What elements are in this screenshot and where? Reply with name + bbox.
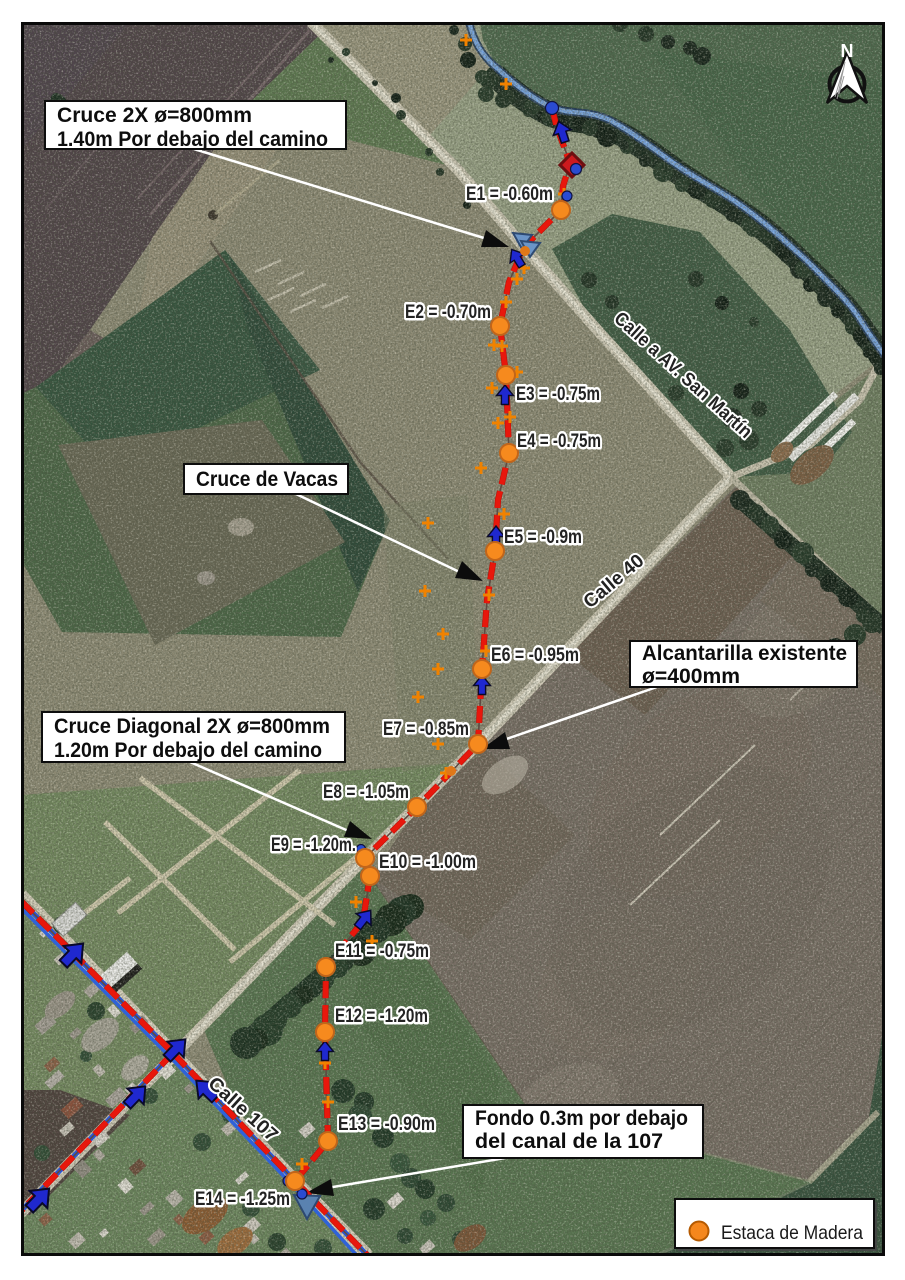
- svg-text:1.20m Por debajo del camino: 1.20m Por debajo del camino: [54, 739, 322, 762]
- svg-text:E13 = -0.90m: E13 = -0.90m: [338, 1113, 435, 1135]
- svg-text:E1 = -0.60m: E1 = -0.60m: [466, 183, 553, 205]
- svg-text:E10 = -1.00m: E10 = -1.00m: [379, 851, 476, 873]
- svg-text:Cruce 2X ø=800mm: Cruce 2X ø=800mm: [57, 104, 252, 127]
- svg-text:Estaca de Madera: Estaca de Madera: [721, 1222, 863, 1244]
- svg-text:E5 = -0.9m: E5 = -0.9m: [504, 526, 582, 548]
- svg-text:Alcantarilla existente: Alcantarilla existente: [642, 642, 847, 665]
- svg-text:E4 = -0.75m: E4 = -0.75m: [517, 430, 601, 452]
- svg-text:E9 = -1.20m.: E9 = -1.20m.: [271, 834, 356, 856]
- svg-text:E3 = -0.75m: E3 = -0.75m: [516, 383, 600, 405]
- svg-text:E2 = -0.70m: E2 = -0.70m: [405, 301, 491, 323]
- svg-text:ø=400mm: ø=400mm: [642, 665, 740, 688]
- svg-text:E7 = -0.85m: E7 = -0.85m: [383, 718, 469, 740]
- svg-text:Cruce Diagonal 2X ø=800mm: Cruce Diagonal 2X ø=800mm: [54, 715, 330, 738]
- svg-text:N: N: [841, 41, 854, 61]
- svg-text:E6 = -0.95m: E6 = -0.95m: [491, 644, 579, 666]
- svg-text:Fondo 0.3m por debajo: Fondo 0.3m por debajo: [475, 1107, 688, 1130]
- svg-text:E11 = -0.75m: E11 = -0.75m: [335, 940, 429, 962]
- svg-text:1.40m Por debajo del camino: 1.40m Por debajo del camino: [57, 128, 328, 151]
- svg-text:E8 = -1.05m: E8 = -1.05m: [323, 781, 409, 803]
- svg-text:Cruce de Vacas: Cruce de Vacas: [196, 468, 338, 491]
- svg-text:E14 = -1.25m: E14 = -1.25m: [195, 1188, 290, 1210]
- svg-text:E12 = -1.20m: E12 = -1.20m: [335, 1005, 428, 1027]
- svg-text:del canal de la 107: del canal de la 107: [475, 1130, 663, 1153]
